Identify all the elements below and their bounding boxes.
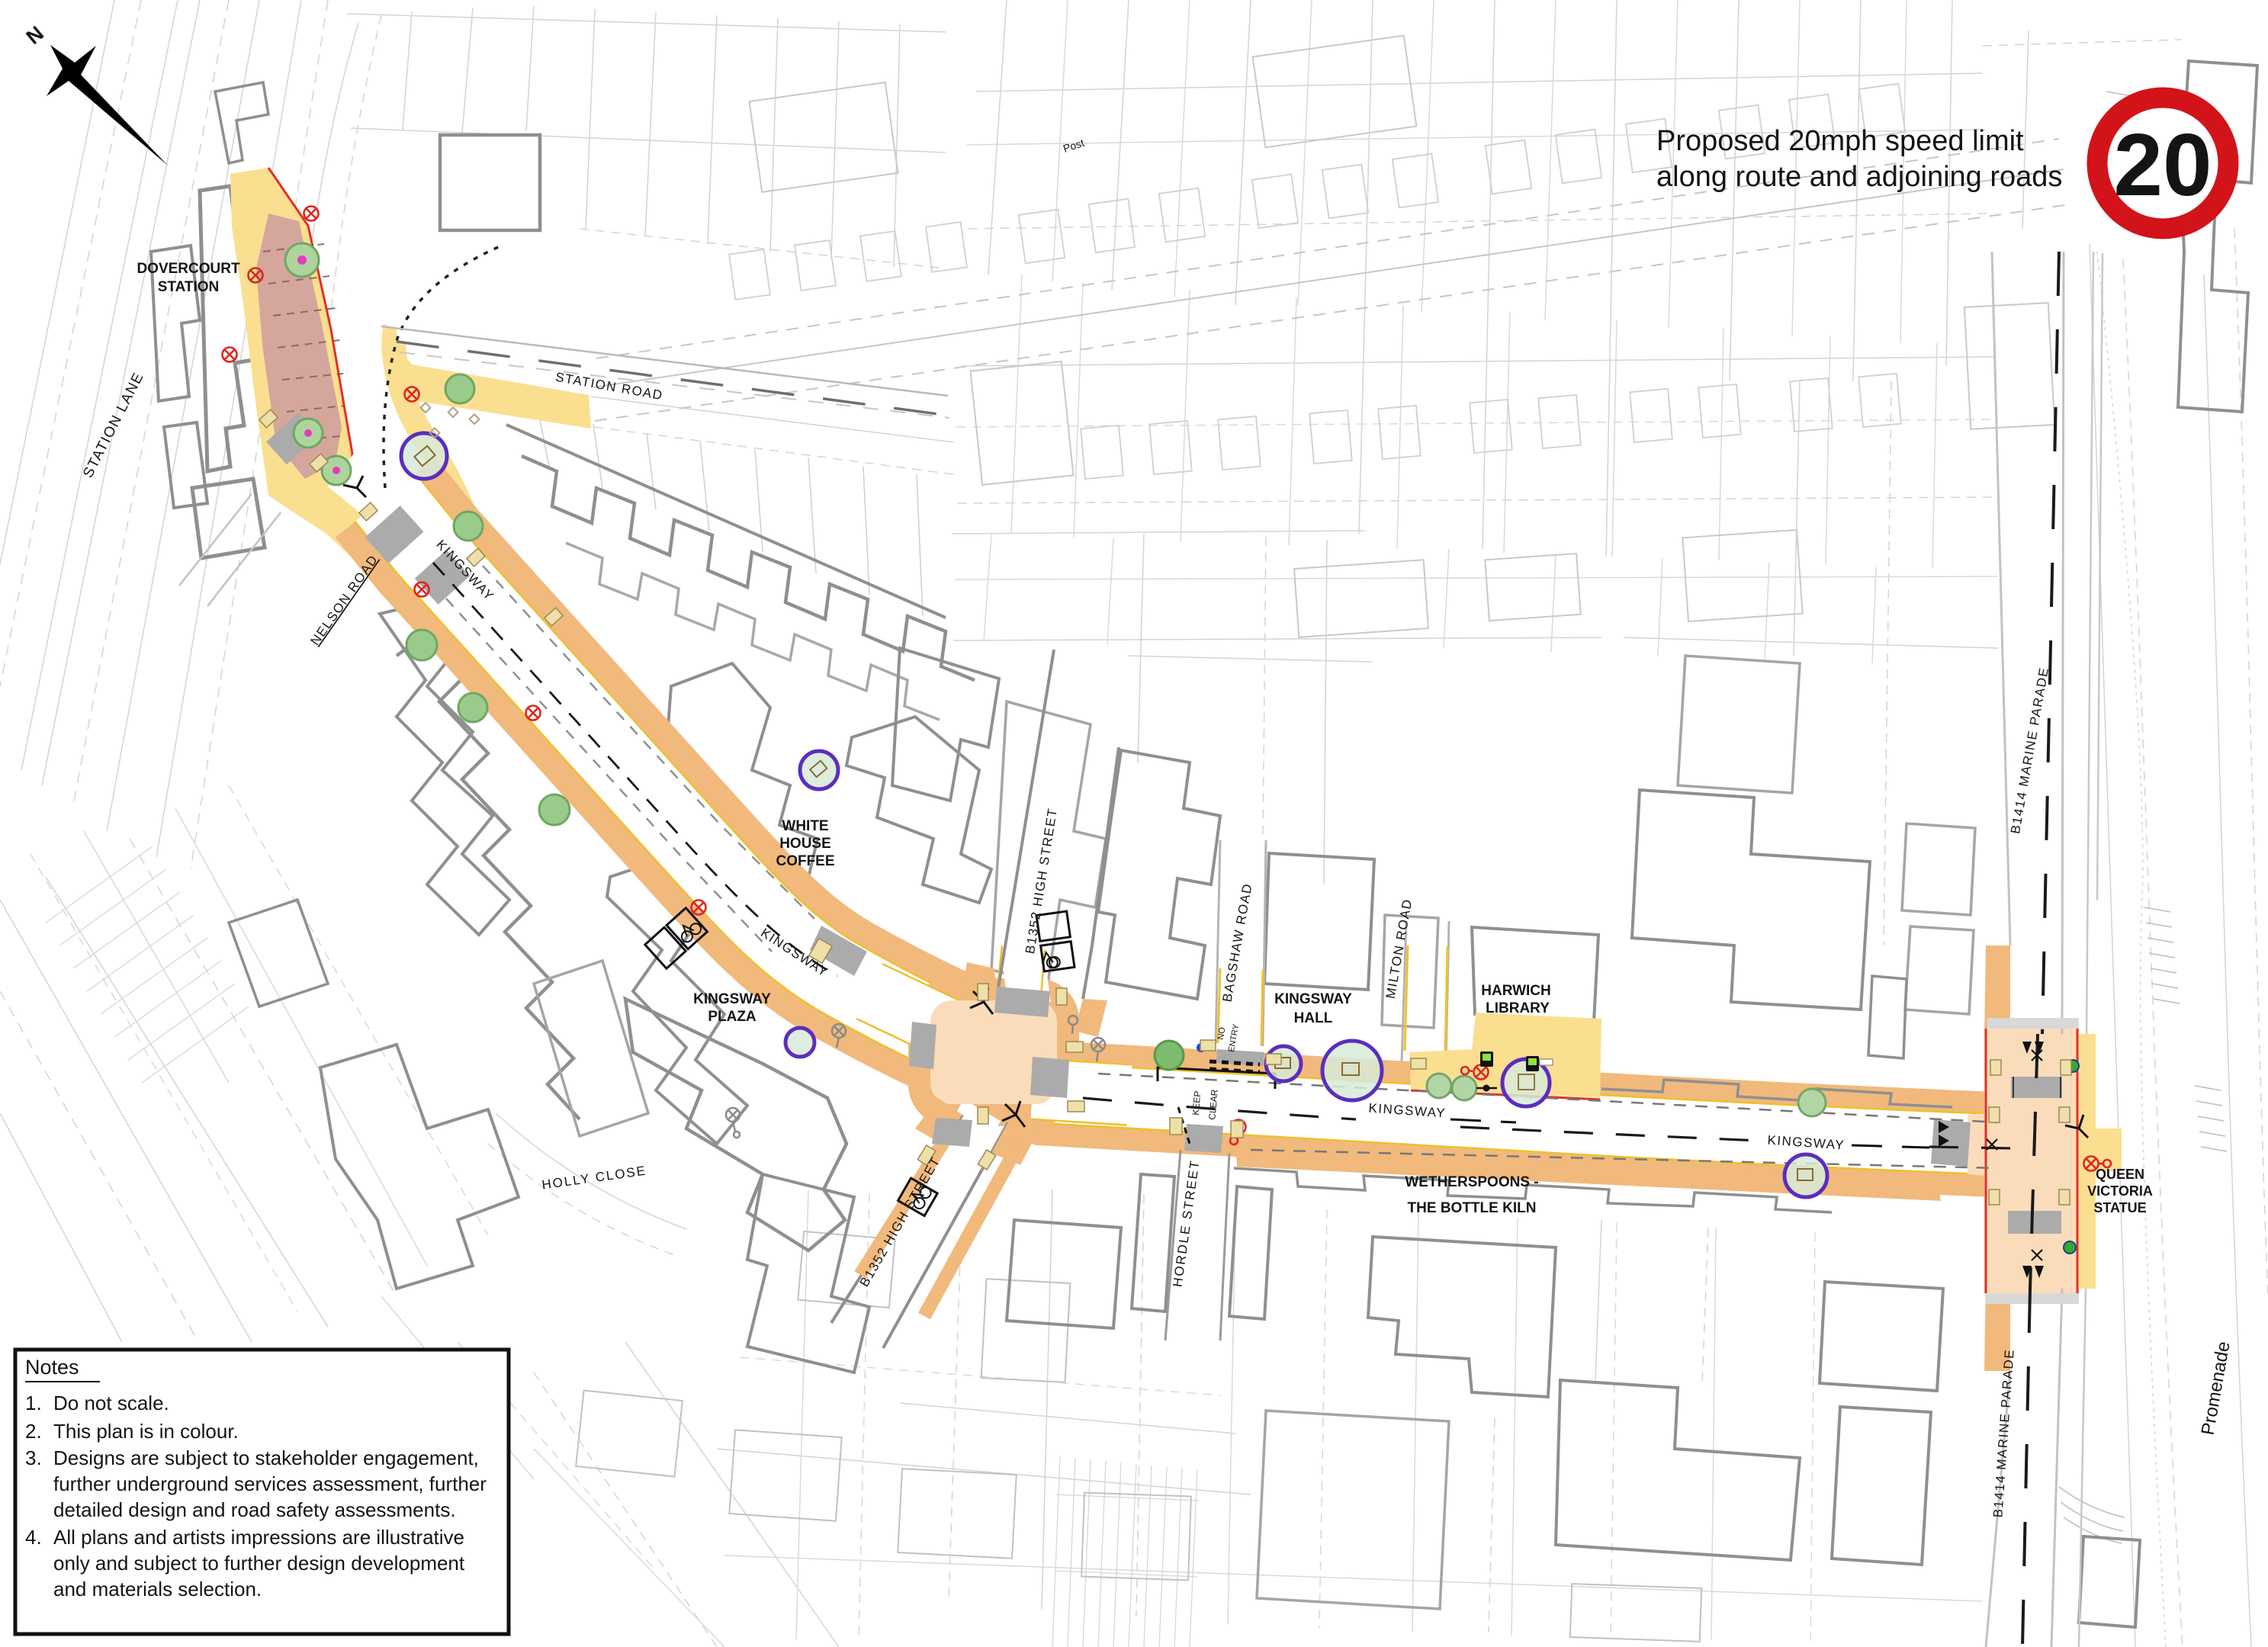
- svg-text:WETHERSPOONS -: WETHERSPOONS -: [1405, 1174, 1538, 1190]
- svg-text:Notes: Notes: [25, 1356, 79, 1379]
- svg-text:4.: 4.: [25, 1526, 42, 1549]
- svg-text:All plans and artists impressi: All plans and artists impressions are il…: [53, 1526, 464, 1549]
- svg-text:3.: 3.: [25, 1446, 42, 1469]
- svg-text:HOUSE: HOUSE: [779, 836, 831, 852]
- svg-text:further underground services a: further underground services assessment,…: [53, 1472, 487, 1495]
- svg-text:WHITE: WHITE: [782, 818, 828, 834]
- svg-text:Proposed 20mph speed limit: Proposed 20mph speed limit: [1656, 125, 2024, 157]
- svg-text:STATION: STATION: [158, 279, 220, 295]
- svg-text:Do not scale.: Do not scale.: [53, 1392, 169, 1414]
- svg-text:QUEEN: QUEEN: [2096, 1167, 2144, 1182]
- svg-text:HALL: HALL: [1294, 1010, 1333, 1026]
- svg-text:only and subject to further de: only and subject to further design devel…: [53, 1552, 465, 1575]
- svg-text:COFFEE: COFFEE: [776, 853, 834, 869]
- svg-text:1.: 1.: [25, 1392, 42, 1414]
- svg-text:LIBRARY: LIBRARY: [1486, 1000, 1550, 1016]
- svg-text:This plan is in colour.: This plan is in colour.: [53, 1420, 239, 1443]
- svg-text:along route and adjoining road: along route and adjoining roads: [1656, 161, 2062, 193]
- svg-text:KINGSWAY: KINGSWAY: [1274, 991, 1352, 1007]
- svg-text:KINGSWAY: KINGSWAY: [693, 991, 771, 1007]
- svg-text:and materials selection.: and materials selection.: [53, 1578, 262, 1600]
- svg-text:VICTORIA: VICTORIA: [2087, 1183, 2153, 1199]
- svg-text:KEEP: KEEP: [1190, 1090, 1203, 1116]
- svg-text:DOVERCOURT: DOVERCOURT: [137, 261, 240, 277]
- svg-text:Designs are subject to stakeho: Designs are subject to stakeholder engag…: [53, 1446, 479, 1469]
- svg-text:THE BOTTLE KILN: THE BOTTLE KILN: [1408, 1200, 1537, 1216]
- svg-text:HARWICH: HARWICH: [1481, 983, 1550, 999]
- svg-text:PLAZA: PLAZA: [708, 1009, 757, 1025]
- svg-text:STATUE: STATUE: [2093, 1200, 2146, 1215]
- svg-text:detailed design and road safet: detailed design and road safety assessme…: [53, 1498, 456, 1521]
- svg-text:20: 20: [2113, 115, 2212, 214]
- svg-text:2.: 2.: [25, 1420, 42, 1443]
